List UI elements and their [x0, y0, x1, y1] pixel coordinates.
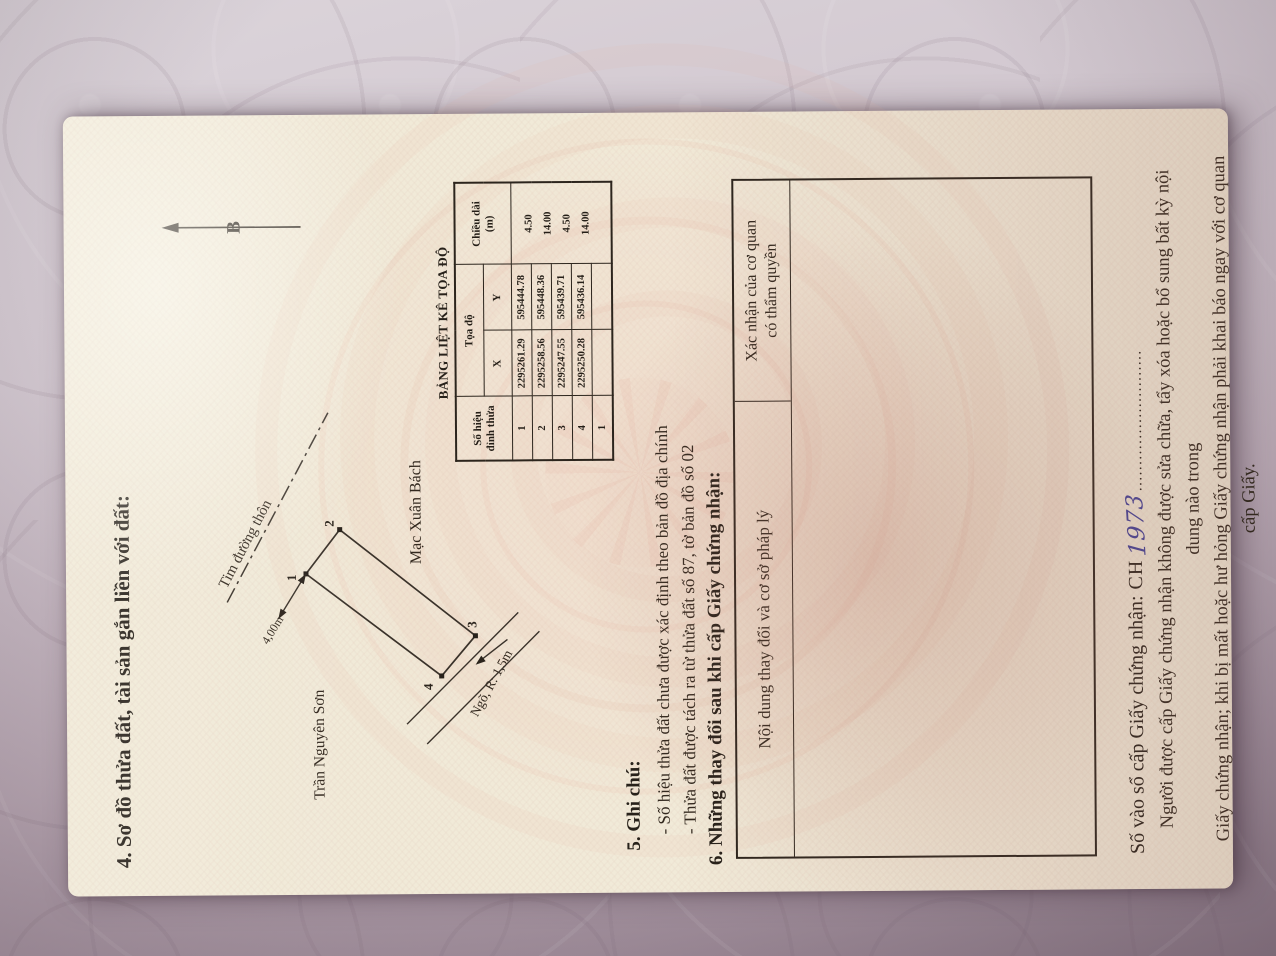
vertex-2-point	[337, 527, 342, 532]
photo-of-certificate: 4. Sơ đồ thửa đất, tài sản gắn liền với …	[0, 0, 1276, 956]
parcel-outline	[306, 529, 476, 677]
road-centerline	[226, 413, 329, 603]
page-content: 4. Sơ đồ thửa đất, tài sản gắn liền với …	[63, 108, 1233, 896]
certificate-page: 4. Sơ đồ thửa đất, tài sản gắn liền với …	[63, 108, 1233, 896]
dimension-arrow-head	[278, 609, 286, 619]
vertex-3-point	[473, 633, 478, 638]
dimension-arrow-head	[298, 574, 306, 584]
north-arrow-line	[168, 227, 301, 228]
vertex-4-point	[439, 673, 444, 678]
north-arrow-head	[162, 223, 179, 233]
parcel-diagram	[63, 108, 1233, 896]
